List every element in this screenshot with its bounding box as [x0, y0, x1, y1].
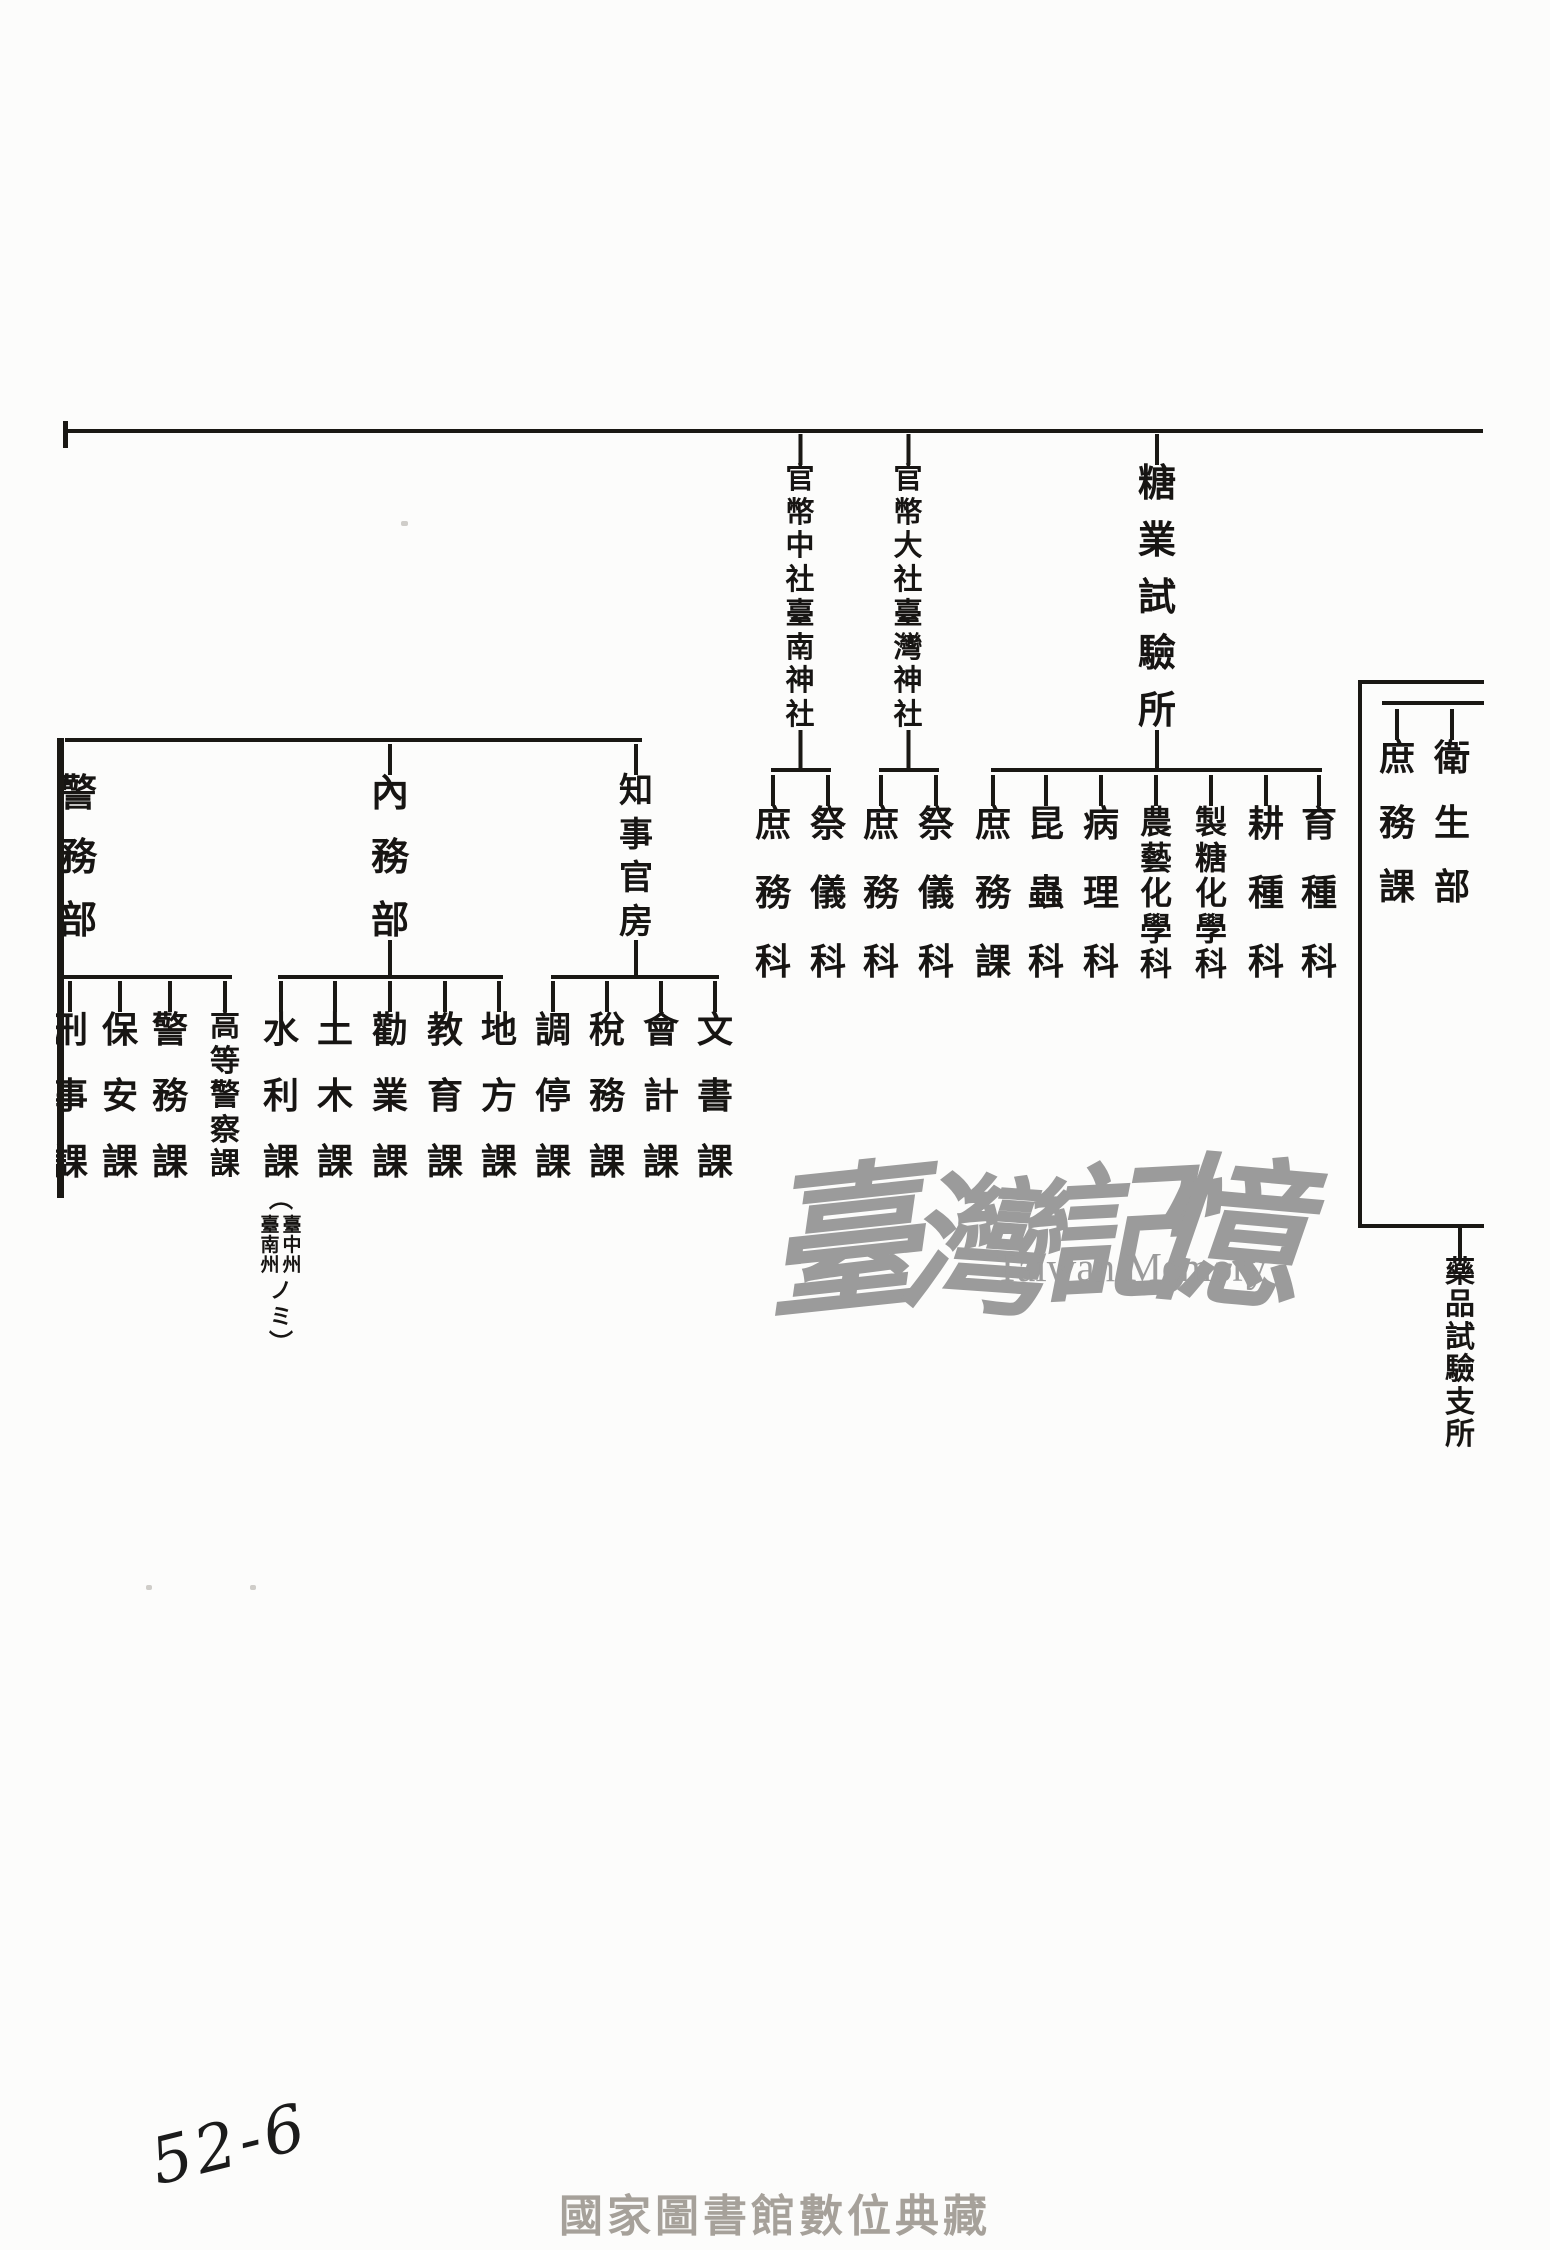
node-sugar-seito-kagaku-ka: 製糖化學科 [1195, 806, 1227, 980]
node-koto-keisatsu-ka: 高等警察課 [210, 1012, 240, 1180]
scan-speck [401, 521, 408, 526]
library-footer-caption: 國家圖書館數位典藏 [559, 2180, 991, 2244]
node-suiri-ka: 水利課 [263, 1012, 299, 1180]
naimubu-children-line [278, 975, 503, 979]
taiwan-shrine-children-line [879, 768, 939, 772]
handwritten-page-number: 52-6 [143, 2090, 316, 2200]
keimubu-children-line [57, 975, 232, 979]
node-keimu-ka: 警務課 [152, 1012, 188, 1180]
sugar-lab-children-line [991, 768, 1322, 772]
node-naimu-bu: 內務部 [371, 775, 409, 940]
watermark-char: 臺 [750, 1106, 931, 1350]
health-unit-bottom-line [1358, 1224, 1484, 1228]
node-sugar-konchu-ka: 昆蟲科 [1028, 806, 1064, 980]
top-rule-line [65, 429, 1483, 433]
watermark-char: 憶 [1134, 1097, 1314, 1342]
node-kyoiku-ka: 教育課 [427, 1012, 463, 1180]
node-chiho-ka: 地方課 [481, 1012, 517, 1180]
note-taichu-shu: 臺中州 [283, 1216, 302, 1276]
node-sugar-koshu-ka: 耕種科 [1248, 806, 1284, 980]
note-prefecture-columns: 臺南州 臺中州 [260, 1216, 301, 1276]
left-edge-vertical-line [57, 738, 64, 1198]
node-kanpei-chusha-tainan-jinja: 官幣中社臺南神社 [785, 465, 814, 730]
node-kaikei-ka: 會計課 [643, 1012, 679, 1180]
node-togyo-shikenjo: 糖業試驗所 [1138, 465, 1176, 730]
node-chiji-kanbo: 知事官房 [619, 775, 653, 940]
node-sugar-shomu-ka: 庶務課 [975, 806, 1011, 980]
department-rule-line [65, 738, 642, 742]
node-hoan-ka: 保安課 [102, 1012, 138, 1180]
node-eisei-bu: 衛生部 [1434, 740, 1470, 905]
node-zeimu-ka: 稅務課 [589, 1012, 625, 1180]
scan-speck [146, 1585, 152, 1590]
scan-edge-mask [0, 690, 56, 1410]
note-nomi: ノミ [270, 1280, 292, 1328]
node-chotei-ka: 調停課 [535, 1012, 571, 1180]
watermark-latin-text: Taiwan Memory [995, 1243, 1267, 1291]
watermark-char: 記 [1035, 1114, 1192, 1332]
health-unit-top-line [1358, 680, 1484, 684]
node-kanpei-taisha-taiwan-jinja: 官幣大社臺灣神社 [893, 465, 922, 730]
node-bunsho-ka: 文書課 [697, 1012, 733, 1180]
scan-speck [250, 1585, 256, 1590]
node-taiwan-jinja-saigi-ka: 祭儀科 [918, 806, 954, 980]
note-close-paren: ︶ [269, 1332, 293, 1356]
note-tainan-shu: 臺南州 [260, 1216, 279, 1276]
node-sugar-byori-ka: 病理科 [1083, 806, 1119, 980]
node-sugar-nogei-kagaku-ka: 農藝化學科 [1140, 806, 1172, 980]
watermark-char: 灣 [895, 1121, 1060, 1348]
top-rule-left-stub [63, 421, 68, 448]
suiri-ka-note: ︵ 臺南州 臺中州 ノミ ︶ [260, 1188, 301, 1356]
node-tainan-jinja-saigi-ka: 祭儀科 [810, 806, 846, 980]
chijikanbo-children-line [551, 975, 719, 979]
node-taiwan-jinja-shomu-ka: 庶務科 [863, 806, 899, 980]
node-eisei-shomu-ka: 庶務課 [1379, 740, 1415, 905]
node-sugar-ikushu-ka: 育種科 [1301, 806, 1337, 980]
tainan-shrine-children-line [771, 768, 831, 772]
health-unit-vertical-line [1358, 680, 1362, 1228]
node-doboku-ka: 土木課 [317, 1012, 353, 1180]
node-keimu-bu: 警務部 [59, 775, 97, 940]
node-kangyo-ka: 勸業課 [372, 1012, 408, 1180]
node-tainan-jinja-shomu-ka: 庶務科 [755, 806, 791, 980]
scanned-org-chart-page: 官幣中社臺南神社 官幣大社臺灣神社 糖業試驗所 庶務科 祭儀科 庶務科 祭儀科 … [0, 0, 1550, 2250]
note-open-paren: ︵ [269, 1188, 293, 1212]
health-unit-inner-line [1382, 701, 1484, 705]
node-yakuhin-shiken-shisho: 藥品試驗支所 [1445, 1258, 1475, 1450]
